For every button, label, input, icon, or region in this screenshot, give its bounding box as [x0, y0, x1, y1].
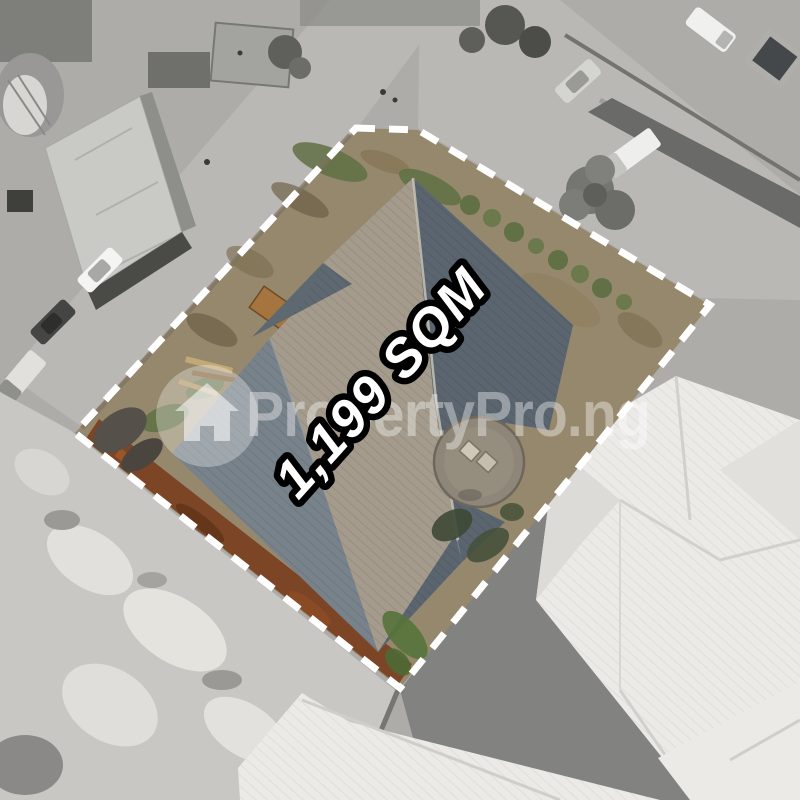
- pedestrian: [238, 51, 243, 56]
- pedestrian: [380, 89, 386, 95]
- cyclist: [204, 159, 210, 165]
- pedestrian: [393, 98, 398, 103]
- aerial-photo-canvas: PropertyPro.ng 1,199 SQM: [0, 0, 800, 800]
- aerial-photo: PropertyPro.ng 1,199 SQM: [0, 0, 800, 800]
